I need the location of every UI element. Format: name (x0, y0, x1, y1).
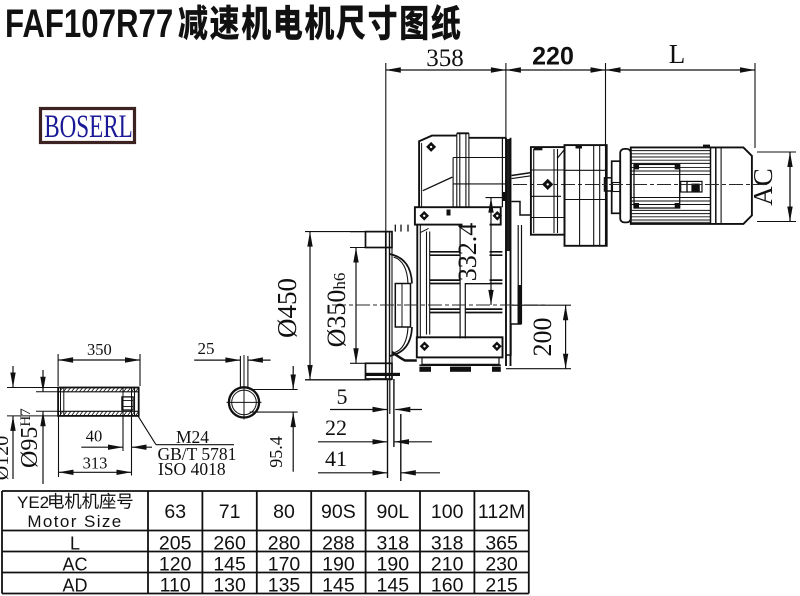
svg-text:40: 40 (86, 427, 103, 446)
svg-text:90L: 90L (377, 501, 410, 523)
svg-text:145: 145 (213, 554, 246, 576)
svg-text:365: 365 (485, 533, 518, 555)
svg-text:L: L (70, 534, 80, 554)
svg-text:Ø450: Ø450 (272, 278, 302, 338)
svg-text:190: 190 (377, 554, 410, 576)
svg-text:313: 313 (83, 454, 108, 473)
svg-text:5: 5 (337, 384, 348, 409)
svg-text:ISO 4018: ISO 4018 (158, 459, 226, 479)
svg-text:200: 200 (528, 318, 557, 357)
svg-text:Ø350h6: Ø350h6 (322, 273, 351, 348)
svg-text:332.4: 332.4 (453, 223, 482, 282)
svg-text:130: 130 (213, 575, 246, 596)
svg-text:288: 288 (322, 533, 355, 555)
svg-text:318: 318 (431, 533, 464, 555)
svg-text:170: 170 (268, 554, 301, 576)
svg-text:145: 145 (377, 575, 410, 596)
svg-text:Ø120: Ø120 (0, 436, 13, 480)
svg-text:350: 350 (87, 340, 112, 359)
svg-text:25: 25 (198, 339, 215, 358)
svg-text:318: 318 (377, 533, 410, 555)
svg-text:95.4: 95.4 (266, 436, 286, 468)
svg-text:205: 205 (159, 533, 192, 555)
svg-text:FAF107R77: FAF107R77 (5, 1, 173, 46)
svg-text:280: 280 (268, 533, 301, 555)
svg-text:135: 135 (268, 575, 301, 596)
svg-text:160: 160 (431, 575, 464, 596)
svg-text:Motor Size: Motor Size (27, 512, 122, 531)
svg-text:90S: 90S (321, 501, 356, 523)
svg-text:71: 71 (219, 501, 241, 523)
svg-text:230: 230 (485, 554, 518, 576)
svg-text:112M: 112M (478, 501, 525, 523)
svg-text:22: 22 (325, 415, 347, 440)
svg-text:358: 358 (426, 45, 464, 72)
svg-text:AD: AD (62, 576, 87, 596)
svg-text:YE2: YE2 (17, 493, 49, 512)
svg-text:210: 210 (431, 554, 464, 576)
svg-text:145: 145 (322, 575, 355, 596)
svg-text:190: 190 (322, 554, 355, 576)
svg-text:L: L (669, 39, 686, 69)
svg-text:AC: AC (62, 555, 87, 575)
svg-text:120: 120 (159, 554, 192, 576)
svg-text:63: 63 (164, 501, 186, 523)
svg-text:260: 260 (213, 533, 246, 555)
svg-text:Ø95H7: Ø95H7 (17, 408, 43, 468)
svg-text:110: 110 (160, 575, 191, 596)
svg-text:BOSERL: BOSERL (44, 109, 133, 145)
svg-text:100: 100 (431, 501, 464, 523)
svg-text:80: 80 (273, 501, 295, 523)
svg-text:215: 215 (485, 575, 518, 596)
svg-text:220: 220 (532, 43, 574, 71)
svg-text:41: 41 (325, 446, 347, 471)
